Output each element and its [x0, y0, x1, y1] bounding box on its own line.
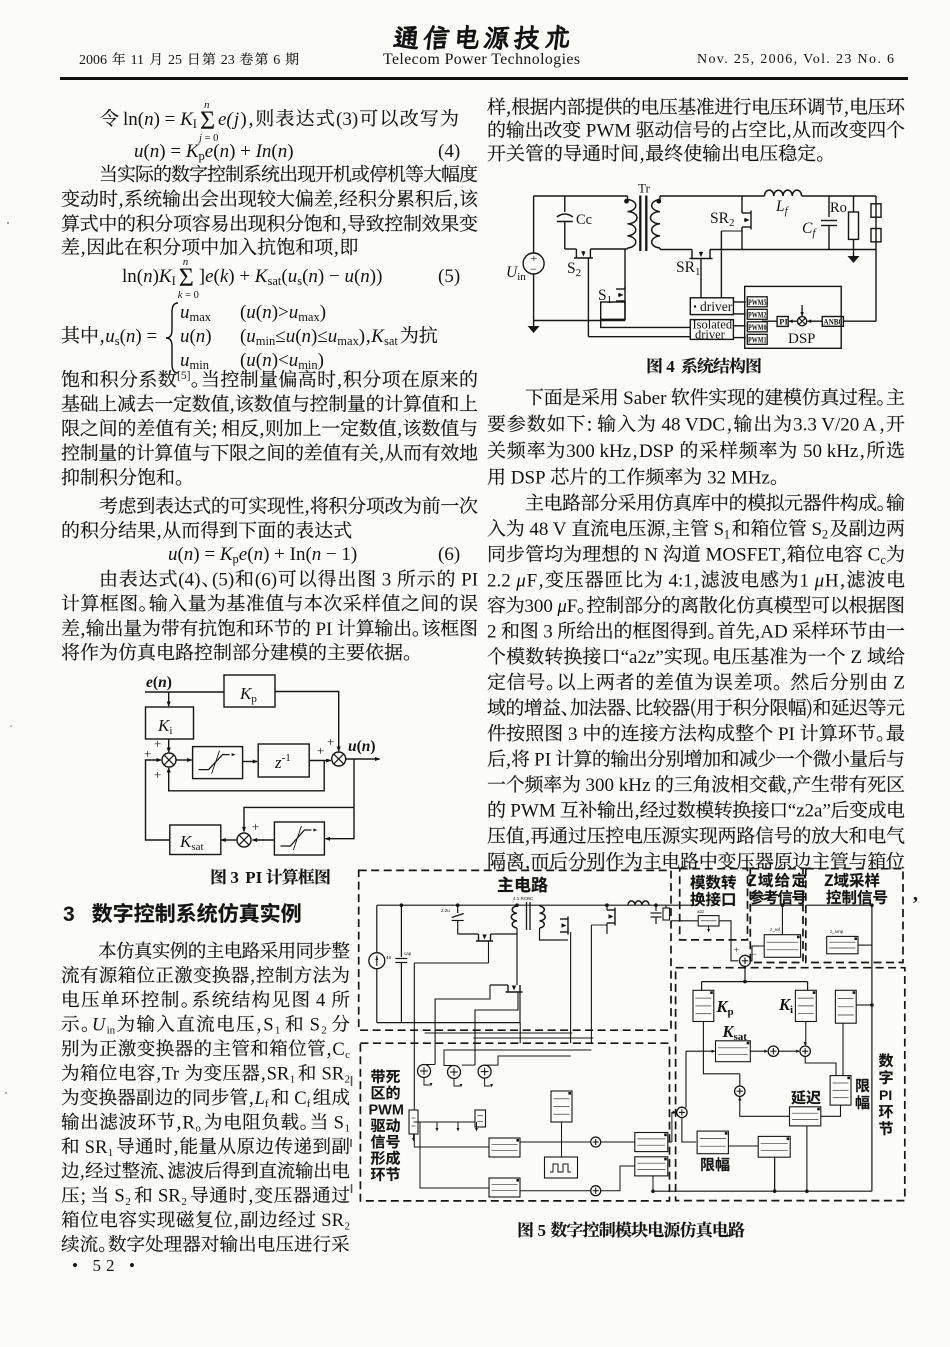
svg-text:z-1: z-1 [274, 752, 291, 772]
svg-text:C: C [290, 1088, 307, 1109]
svg-text:n: n [312, 544, 322, 565]
svg-text:S: S [263, 1015, 273, 1036]
svg-text:ANB0: ANB0 [823, 317, 842, 326]
svg-text:N: N [639, 545, 662, 566]
svg-text:+: + [327, 734, 334, 749]
svg-text:Ro: Ro [830, 200, 847, 216]
svg-text:u: u [345, 266, 355, 287]
svg-text:MOSFET: MOSFET [701, 545, 781, 566]
svg-text:“z2a”: “z2a” [788, 801, 831, 822]
svg-text:2: 2 [822, 527, 828, 541]
svg-text:u: u [105, 326, 115, 347]
svg-text:PWM: PWM [581, 121, 636, 142]
svg-text:SR: SR [153, 1186, 181, 1207]
svg-text:(: ( [213, 141, 219, 162]
svg-text:u: u [289, 302, 299, 323]
svg-text:PI: PI [879, 1087, 892, 1103]
svg-text:): ) [318, 350, 324, 371]
svg-text:S: S [329, 1112, 344, 1133]
svg-text:PI: PI [245, 868, 266, 887]
svg-text:3: 3 [226, 868, 239, 887]
svg-text:PWM: PWM [369, 1103, 404, 1119]
svg-text:2: 2 [181, 1196, 187, 1208]
svg-text:e: e [205, 141, 213, 162]
svg-text:−: − [530, 262, 537, 276]
svg-text:a2z: a2z [697, 909, 705, 914]
svg-text:F: F [527, 570, 538, 591]
svg-text:e: e [239, 544, 247, 565]
svg-text:u: u [286, 326, 296, 347]
svg-text:SR2: SR2 [710, 210, 734, 229]
svg-text:Z: Z [889, 673, 905, 694]
svg-text:Ksat: Ksat [179, 832, 204, 853]
svg-text:− 1): − 1) [321, 544, 357, 565]
svg-text:2.2u: 2.2u [441, 908, 450, 913]
svg-text:n: n [262, 350, 272, 371]
svg-text:n: n [308, 266, 318, 287]
svg-text:4: 4 [662, 357, 675, 376]
svg-text:cap: cap [404, 951, 412, 956]
svg-text:S: S [110, 1186, 125, 1207]
svg-text:) + In(: ) + In( [263, 544, 312, 565]
svg-text:sat: sat [268, 274, 282, 288]
svg-text:4:1: 4:1 [664, 570, 693, 591]
svg-text:PWM: PWM [506, 801, 561, 822]
svg-text:n: n [150, 141, 160, 162]
svg-text:PI: PI [456, 570, 478, 591]
svg-text:n: n [126, 326, 135, 347]
svg-text:max: max [190, 310, 212, 324]
svg-text:32 MHz: 32 MHz [702, 468, 770, 489]
svg-text:[5]: [5] [177, 370, 190, 382]
svg-text:5: 5 [533, 1221, 546, 1240]
svg-text:): ) [359, 326, 365, 347]
svg-text:) =: ) = [135, 326, 162, 347]
svg-text:z_ref: z_ref [770, 927, 781, 932]
svg-text:2006: 2006 [79, 53, 111, 68]
svg-text:u: u [180, 302, 190, 323]
svg-text:i: i [790, 1004, 793, 1016]
svg-text:S2: S2 [567, 260, 581, 279]
svg-text:DSP: DSP [639, 441, 678, 462]
svg-text:23: 23 [217, 53, 238, 68]
svg-text:u: u [180, 326, 190, 347]
svg-text:4: 4 [311, 990, 330, 1011]
svg-text:Lf: Lf [775, 198, 790, 217]
svg-text:DSP: DSP [788, 331, 816, 347]
svg-text:>: > [278, 302, 289, 323]
svg-text:6: 6 [270, 53, 284, 68]
svg-text:u: u [328, 326, 338, 347]
svg-text:SR: SR [317, 1210, 345, 1231]
svg-text:f: f [265, 1098, 269, 1110]
svg-text:u: u [246, 350, 256, 371]
svg-text:F: F [567, 596, 578, 617]
svg-text:Cc: Cc [576, 212, 592, 228]
svg-text:u: u [288, 266, 298, 287]
svg-text:+: + [734, 945, 739, 955]
svg-text:max: max [337, 334, 359, 348]
svg-text:μ: μ [814, 570, 825, 591]
svg-text:(5): (5) [212, 570, 234, 591]
svg-text:300: 300 [524, 596, 557, 617]
svg-text:48 VDC: 48 VDC [657, 415, 725, 436]
svg-text:+: + [252, 819, 259, 834]
svg-text:u(n): u(n) [348, 738, 376, 755]
svg-text:max: max [298, 310, 320, 324]
svg-text:In: In [255, 141, 272, 162]
svg-text:) +: ) + [229, 141, 256, 162]
svg-text:2: 2 [125, 1196, 130, 1208]
svg-text:4:1 RCBC: 4:1 RCBC [513, 896, 534, 901]
svg-text:≤: ≤ [317, 326, 327, 347]
svg-text:(6): (6) [255, 570, 277, 591]
svg-text:(: ( [256, 350, 262, 371]
svg-text:n: n [360, 266, 370, 287]
svg-text:o: o [195, 1123, 201, 1135]
svg-text:u: u [289, 350, 299, 371]
svg-text:u: u [168, 544, 178, 565]
svg-text:(4): (4) [178, 570, 200, 591]
svg-text:n: n [196, 326, 206, 347]
svg-text:2: 2 [345, 1074, 351, 1086]
svg-text:u: u [134, 141, 144, 162]
svg-text:1: 1 [108, 1147, 114, 1159]
svg-text:e: e [205, 266, 213, 287]
svg-text:R: R [182, 1112, 195, 1133]
svg-text:): ) [287, 141, 293, 162]
svg-text:z_smp: z_smp [830, 929, 844, 934]
svg-text:): ) [320, 302, 326, 323]
svg-text:n: n [262, 302, 272, 323]
svg-text:n: n [220, 141, 230, 162]
svg-text:e(n): e(n) [146, 674, 172, 691]
svg-text:Ki: Ki [157, 716, 172, 737]
svg-text:μ: μ [556, 596, 567, 617]
svg-text:n: n [183, 256, 189, 268]
svg-text:Kp: Kp [239, 684, 257, 705]
svg-text:ln(: ln( [123, 109, 144, 130]
svg-text:(: ( [214, 266, 220, 287]
svg-text:SR: SR [267, 1064, 290, 1085]
svg-text:min: min [256, 334, 276, 348]
svg-text:L: L [254, 1088, 265, 1109]
svg-text:μ: μ [515, 570, 526, 591]
svg-text:SR1: SR1 [676, 259, 700, 278]
svg-text:PI: PI [311, 619, 337, 640]
svg-text:n: n [184, 544, 194, 565]
svg-text:SR: SR [317, 1064, 345, 1085]
svg-text:Cf: Cf [802, 220, 817, 239]
svg-text:) −: ) − [318, 266, 345, 287]
svg-text:Tr: Tr [162, 1064, 184, 1085]
svg-text:driver: driver [700, 299, 733, 314]
svg-text:(5): (5) [438, 266, 460, 287]
svg-text:u: u [180, 350, 190, 371]
svg-text:+: + [154, 767, 161, 782]
svg-text:sat: sat [384, 334, 398, 348]
svg-text:(6): (6) [438, 544, 460, 565]
svg-text:1: 1 [345, 1123, 351, 1135]
svg-text:min: min [298, 358, 318, 372]
svg-text:U: U [92, 1015, 107, 1036]
svg-text:n: n [278, 141, 288, 162]
svg-text:S: S [305, 1015, 320, 1036]
svg-text:SR: SR [80, 1137, 108, 1158]
svg-text:PI: PI [779, 317, 788, 327]
svg-text:3: 3 [563, 724, 582, 745]
svg-text:PI: PI [773, 724, 799, 745]
svg-text:“a2z”: “a2z” [621, 647, 664, 668]
svg-text:n: n [144, 109, 154, 130]
svg-text:PWM5: PWM5 [748, 297, 767, 307]
svg-text:300 kHz: 300 kHz [581, 775, 655, 796]
svg-text:DSP: DSP [506, 468, 550, 489]
svg-text:≤: ≤ [275, 326, 285, 347]
svg-text:3: 3 [377, 570, 396, 591]
svg-text:) =: ) = [154, 109, 181, 130]
svg-text:n: n [254, 544, 264, 565]
svg-text:driver: driver [695, 328, 726, 342]
svg-text:n: n [143, 266, 153, 287]
svg-text:• 52 •: • 52 • [72, 1256, 135, 1275]
svg-text:300 kHz: 300 kHz [566, 441, 631, 462]
svg-text:f: f [307, 1098, 311, 1110]
svg-text:+: + [317, 743, 324, 758]
svg-text:(3): (3) [336, 109, 358, 130]
svg-text:n: n [204, 99, 210, 111]
svg-text:1: 1 [800, 570, 814, 591]
svg-text:(4): (4) [438, 141, 460, 162]
svg-text:<: < [278, 350, 289, 371]
svg-text:(: ( [247, 544, 253, 565]
svg-text:1: 1 [275, 1025, 281, 1037]
svg-text:S: S [807, 519, 822, 540]
svg-text:) =: ) = [193, 544, 220, 565]
svg-text:PWM2: PWM2 [748, 310, 767, 320]
svg-text:Z: Z [846, 647, 867, 668]
svg-text:1: 1 [724, 527, 730, 541]
svg-text:2: 2 [321, 1025, 327, 1037]
svg-text:50 kHz: 50 kHz [798, 441, 858, 462]
svg-text:C: C [332, 1039, 344, 1060]
svg-text:25: 25 [165, 53, 186, 68]
svg-text:Telecom Power Technologies: Telecom Power Technologies [383, 51, 580, 68]
svg-text:e(: e( [218, 109, 234, 130]
svg-text:3.3 V/20 A: 3.3 V/20 A [793, 415, 877, 436]
svg-text:): ) [205, 326, 211, 347]
svg-text:1: 1 [290, 1074, 296, 1086]
svg-text:k = 0: k = 0 [178, 290, 199, 301]
svg-text:C: C [863, 545, 880, 566]
svg-text:): ) [240, 109, 246, 130]
svg-text:PWM0: PWM0 [748, 322, 767, 332]
svg-text:n: n [302, 326, 312, 347]
svg-text:3: 3 [63, 903, 75, 926]
svg-text:Nov. 25, 2006, Vol. 23 No. 6: Nov. 25, 2006, Vol. 23 No. 6 [697, 52, 894, 67]
svg-text:11: 11 [127, 53, 147, 68]
svg-text:S: S [709, 519, 724, 540]
svg-text:min: min [190, 358, 210, 372]
svg-text:sat: sat [734, 1031, 748, 1043]
svg-text:(: ( [256, 302, 262, 323]
svg-text:+: + [144, 746, 151, 761]
svg-text:Saber: Saber [618, 388, 671, 409]
svg-text:I: I [193, 117, 197, 131]
svg-text:48: 48 [386, 955, 392, 960]
svg-text:2: 2 [345, 1220, 351, 1232]
svg-text:in: in [107, 1025, 116, 1037]
svg-text:PWM1: PWM1 [748, 335, 767, 345]
svg-text:48 V: 48 V [525, 519, 571, 540]
svg-text:2: 2 [487, 622, 501, 643]
svg-text:c: c [880, 553, 886, 567]
svg-text:’: ’ [912, 893, 919, 915]
svg-text:c: c [345, 1049, 350, 1061]
svg-text:AD: AD [760, 622, 792, 643]
svg-text:)): )) [370, 266, 383, 287]
svg-text:) =: ) = [159, 141, 186, 162]
svg-text:I: I [172, 274, 176, 288]
svg-text:−: − [752, 949, 757, 959]
svg-text:PI: PI [529, 750, 555, 771]
svg-text:p: p [728, 1006, 734, 1018]
svg-text:) +: ) + [228, 266, 255, 287]
svg-text:ln(: ln( [122, 266, 143, 287]
svg-text:u: u [246, 302, 256, 323]
svg-text:+: + [154, 736, 161, 751]
svg-text:Tr: Tr [638, 181, 650, 196]
svg-text:2.2: 2.2 [487, 570, 516, 591]
svg-text:3: 3 [539, 622, 558, 643]
svg-text:): ) [311, 326, 317, 347]
svg-text:u: u [246, 326, 256, 347]
svg-text:H: H [825, 570, 839, 591]
